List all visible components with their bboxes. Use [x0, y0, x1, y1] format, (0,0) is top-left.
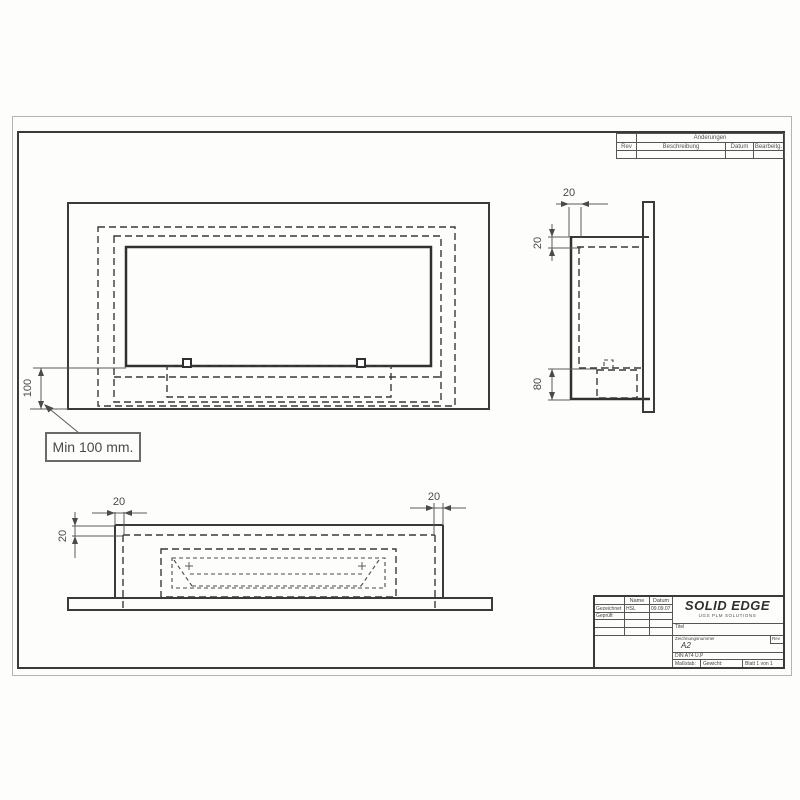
side-view [548, 201, 654, 412]
dim-side-left-20: 20 [532, 230, 544, 256]
tb-number-value: A2 [681, 641, 691, 650]
tb-scale-label: Maßstab: [675, 661, 696, 667]
revision-col-rev: Rev [617, 143, 637, 151]
revision-cell-blank [617, 134, 637, 143]
dim-side-80: 80 [532, 371, 544, 397]
tb-file-text: DIN A74 U.P [675, 653, 703, 659]
solid-edge-logo: SOLID EDGE [674, 599, 781, 613]
glass-clip-right [357, 359, 365, 367]
tb-checked-label: Geprüft [596, 613, 624, 619]
revision-col-desc: Beschreibung [637, 143, 726, 151]
tb-drawn-name: HSL [626, 606, 648, 612]
tb-sheet-label: Blatt 1 von 1 [745, 661, 773, 667]
revision-table: Änderungen Rev Beschreibung Datum Bearbe… [616, 133, 785, 159]
tb-name-header: Name [626, 598, 648, 604]
tb-drawn-date: 09.09.07 [651, 606, 672, 612]
dim-bottom-left-20: 20 [106, 496, 132, 508]
wall-plate-side [643, 202, 654, 412]
tb-drawn-label: Gezeichnet [596, 606, 624, 612]
center-marks [185, 562, 366, 570]
dim-side-top-20: 20 [556, 187, 582, 199]
bottom-view [68, 503, 492, 610]
dim-bottom-side-20: 20 [57, 523, 69, 549]
drawing-sheet-page: 100 Min 100 mm. 20 20 80 20 20 20 Änderu… [0, 0, 800, 800]
tb-date-header: Datum [651, 598, 671, 604]
glass-clip-left [183, 359, 191, 367]
title-block: Name Datum Gezeichnet HSL 09.09.07 Geprü… [593, 595, 785, 669]
tb-title-label: Titel [675, 624, 684, 630]
dim-bottom-right-20: 20 [421, 491, 447, 503]
wall-plate-bottom [68, 598, 492, 610]
revision-col-editor: Bearbeitg. [754, 143, 783, 151]
tb-rev-label: Rev [772, 636, 780, 641]
solid-edge-logo-subtitle: UGS PLM SOLUTIONS [674, 613, 781, 618]
front-dim-100 [30, 368, 126, 433]
min-distance-callout: Min 100 mm. [45, 432, 141, 462]
front-view [68, 203, 489, 409]
dim-front-100: 100 [22, 373, 34, 403]
revision-row-empty [726, 151, 754, 158]
cad-linework [0, 0, 800, 800]
tb-weight-label: Gewicht: [703, 661, 722, 667]
revision-col-date: Datum [726, 143, 754, 151]
revision-row-empty [637, 151, 726, 158]
revision-header: Änderungen [637, 134, 783, 143]
revision-row-empty [617, 151, 637, 158]
